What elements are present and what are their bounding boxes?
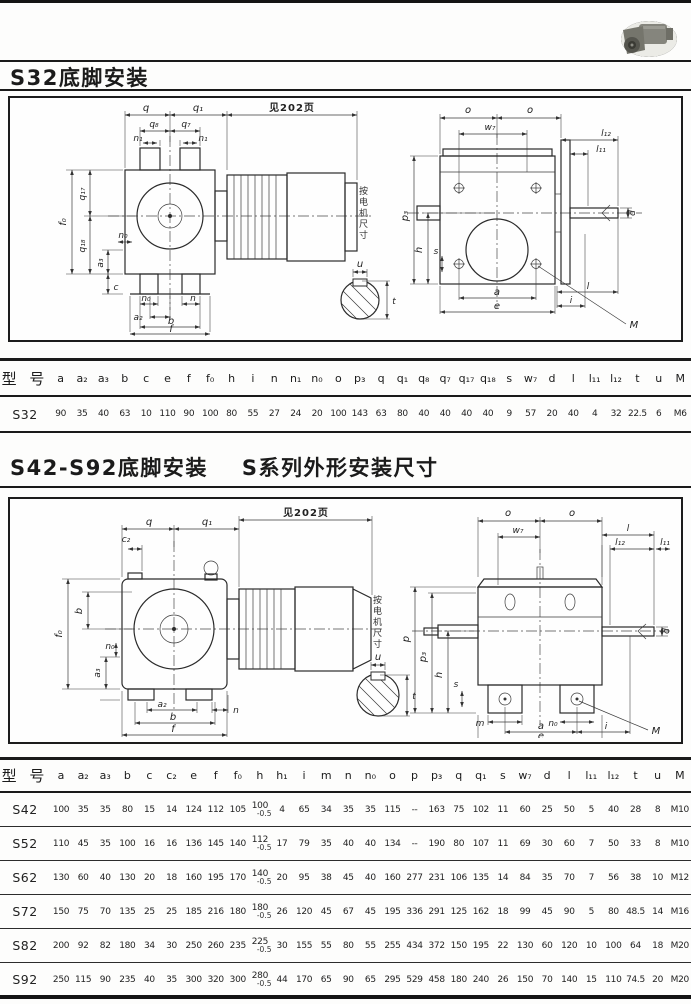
dim-column-header: p [404, 759, 426, 793]
dim-column-header: f₀ [200, 360, 221, 397]
dim-label-l11: l₁₁ [596, 145, 606, 155]
dim-label-i: i [570, 296, 573, 306]
dim-cell: 69 [514, 827, 536, 861]
dim-label-b-side: b [74, 608, 85, 614]
dim-cell: 79 [293, 827, 315, 861]
dim-label-f0: f₀ [54, 630, 65, 638]
dim-cell: 295 [381, 963, 403, 997]
dim-cell: 110 [50, 827, 72, 861]
dim-cell: 80 [337, 929, 359, 963]
dim-cell: -- [404, 792, 426, 827]
s4292-side-view: 按电机尺寸 见202页 q q₁ c₂ f₀ b a₃ n₀ [54, 507, 382, 737]
dim-cell: 40 [138, 963, 160, 997]
dim-cell: 140-0.5 [249, 861, 271, 895]
dim-cell: M20 [669, 963, 691, 997]
dim-column-header: n₀ [359, 759, 381, 793]
dim-cell: 65 [359, 963, 381, 997]
dim-column-header: s [492, 759, 514, 793]
dim-cell: 30 [160, 929, 182, 963]
s32-technical-drawing: 按电机尺寸 q q₁ 见202页 q₈ q₇ n₁ n₁ f₀ q₁₇ [10, 98, 677, 336]
s42-s92-drawing-box: 按电机尺寸 见202页 q q₁ c₂ f₀ b a₃ n₀ [8, 497, 683, 744]
dim-cell: 150 [514, 963, 536, 997]
dim-cell: 20 [647, 963, 669, 997]
dim-cell: 84 [514, 861, 536, 895]
dim-cell: 95 [293, 861, 315, 895]
title1-text: S32底脚安装 [10, 66, 149, 90]
dim-cell: 25 [536, 792, 558, 827]
dim-cell: 105 [227, 792, 249, 827]
dim-cell: M10 [669, 792, 691, 827]
dim-cell: 65 [315, 963, 337, 997]
s32-side-view: 按电机尺寸 q q₁ 见202页 q₈ q₇ n₁ n₁ f₀ q₁₇ [58, 102, 372, 335]
table-header-row: 型 号aa₂a₃bceff₀hinn₁n₀op₃qq₁q₈q₇q₁₇q₁₈sw₇… [0, 360, 691, 397]
dim-cell: 260 [205, 929, 227, 963]
dim-cell: 40 [93, 396, 114, 432]
dim-cell: 45 [315, 895, 337, 929]
dim-cell: 231 [426, 861, 448, 895]
dim-cell: 170 [227, 861, 249, 895]
section-title-s42-s92: S42-S92底脚安装S系列外形安装尺寸 [10, 452, 439, 482]
table-row: S8220092821803430250260235225-0.53015555… [0, 929, 691, 963]
dim-cell: 8 [647, 827, 669, 861]
dim-column-header: a [50, 759, 72, 793]
dim-cell: 10 [647, 861, 669, 895]
dim-cell: 200 [50, 929, 72, 963]
dim-cell: 40 [94, 861, 116, 895]
dim-label-M: M [630, 320, 639, 331]
s32-dimension-table: 型 号aa₂a₃bceff₀hinn₁n₀op₃qq₁q₈q₇q₁₇q₁₈sw₇… [0, 358, 691, 433]
dim-label-u: u [357, 259, 363, 270]
dim-cell: 63 [370, 396, 391, 432]
dim-cell: 70 [536, 963, 558, 997]
model-column-header: 型 号 [0, 759, 50, 793]
dim-cell: 140 [558, 963, 580, 997]
model-cell: S42 [0, 792, 50, 827]
dim-label-p: p [401, 636, 412, 643]
dim-column-header: m [315, 759, 337, 793]
dim-label-i: i [605, 722, 608, 732]
dim-cell: 70 [94, 895, 116, 929]
dim-label-t: t [412, 692, 416, 702]
dim-cell: 35 [94, 792, 116, 827]
s4292-shaft-section: u t [348, 652, 416, 737]
motor-size-note: 按电机尺寸 [371, 594, 382, 650]
dim-cell: 35 [94, 827, 116, 861]
dim-label-e: e [494, 301, 500, 312]
dim-label-n0-bottom: n₀ [141, 294, 151, 304]
dim-column-header: i [293, 759, 315, 793]
page-top-rule [0, 0, 691, 3]
dim-cell: 40 [434, 396, 455, 432]
dim-column-header: q [370, 360, 391, 397]
page-bottom-rule [0, 995, 691, 999]
dim-label-f: f [171, 724, 176, 735]
dim-cell: 5 [580, 895, 602, 929]
dim-cell: 100 [116, 827, 138, 861]
dim-cell: M12 [669, 861, 691, 895]
dim-cell: 60 [514, 792, 536, 827]
dim-cell: 4 [584, 396, 605, 432]
dim-cell: 60 [72, 861, 94, 895]
dim-cell: 124 [183, 792, 205, 827]
dim-cell: 40 [456, 396, 477, 432]
dim-label-q8: q₈ [149, 120, 159, 130]
s42-s92-technical-drawing: 按电机尺寸 见202页 q q₁ c₂ f₀ b a₃ n₀ [10, 499, 677, 738]
dim-column-header: w₇ [520, 360, 541, 397]
dim-label-q17: q₁₇ [78, 187, 88, 200]
dim-cell: 100 [200, 396, 221, 432]
dim-cell: 75 [448, 792, 470, 827]
see-page-note: 见202页 [283, 507, 329, 519]
dim-cell: 250 [183, 929, 205, 963]
dim-cell: 28 [624, 792, 646, 827]
dim-cell: 163 [426, 792, 448, 827]
dim-cell: 50 [602, 827, 624, 861]
dim-column-header: e [183, 759, 205, 793]
s32-drawing-box: 按电机尺寸 q q₁ 见202页 q₈ q₇ n₁ n₁ f₀ q₁₇ [8, 96, 683, 342]
dim-column-header: o [381, 759, 403, 793]
dim-cell: 250 [50, 963, 72, 997]
dim-cell: 100-0.5 [249, 792, 271, 827]
dim-cell: 34 [315, 792, 337, 827]
dim-label-n0-side: n₀ [118, 231, 128, 241]
dim-column-header: a₃ [93, 360, 114, 397]
dim-column-header: l₁₁ [584, 360, 605, 397]
dim-cell: 45 [359, 895, 381, 929]
dim-cell: 112 [205, 792, 227, 827]
dim-cell: 180 [227, 895, 249, 929]
dim-cell: 10 [135, 396, 156, 432]
dim-cell: 24 [285, 396, 306, 432]
dim-label-l12: l₁₂ [601, 129, 611, 139]
model-cell: S92 [0, 963, 50, 997]
dim-cell: 143 [349, 396, 370, 432]
dim-label-q: q [146, 517, 152, 528]
dim-cell: 155 [293, 929, 315, 963]
table-row: S6213060401302018160195170140-0.52095384… [0, 861, 691, 895]
dim-cell: 70 [558, 861, 580, 895]
dim-label-b: b [170, 712, 176, 723]
dim-cell: 6 [648, 396, 669, 432]
dim-cell: 100 [50, 792, 72, 827]
dim-column-header: q₁₇ [456, 360, 477, 397]
dim-label-n0-side: n₀ [105, 642, 115, 652]
dim-cell: 48.5 [624, 895, 646, 929]
dim-cell: 160 [183, 861, 205, 895]
dim-label-e: e [538, 731, 544, 738]
dim-cell: 4 [271, 792, 293, 827]
dim-column-header: n [337, 759, 359, 793]
dim-cell: 100 [328, 396, 349, 432]
dim-cell: 35 [536, 861, 558, 895]
dim-cell: 102 [470, 792, 492, 827]
dim-label-a2: a₂ [133, 313, 143, 323]
dim-cell: 110 [602, 963, 624, 997]
dim-cell: 45 [337, 861, 359, 895]
dim-column-header: f [205, 759, 227, 793]
dim-cell: 38 [315, 861, 337, 895]
dim-cell: 130 [50, 861, 72, 895]
dim-column-header: c [138, 759, 160, 793]
dim-cell: 162 [470, 895, 492, 929]
dim-label-d: d [662, 628, 672, 634]
dim-column-header: b [114, 360, 135, 397]
dim-cell: 15 [138, 792, 160, 827]
dim-cell: 67 [337, 895, 359, 929]
dim-cell: 170 [293, 963, 315, 997]
dim-cell: 240 [470, 963, 492, 997]
dim-column-header: a [50, 360, 71, 397]
dim-cell: 55 [359, 929, 381, 963]
dim-cell: 7 [580, 827, 602, 861]
dim-cell: 195 [205, 861, 227, 895]
dim-label-q: q [143, 103, 149, 114]
dim-column-header: c [135, 360, 156, 397]
dim-cell: 8 [647, 792, 669, 827]
table-row: S329035406310110901008055272420100143638… [0, 396, 691, 432]
dim-column-header: d [536, 759, 558, 793]
dim-column-header: q₁₈ [477, 360, 498, 397]
dim-cell: 7 [580, 861, 602, 895]
dim-column-header: q [448, 759, 470, 793]
dim-cell: 99 [514, 895, 536, 929]
dim-cell: 14 [492, 861, 514, 895]
dim-cell: 106 [448, 861, 470, 895]
dim-label-d: d [628, 210, 638, 216]
dim-cell: 65 [293, 792, 315, 827]
dim-label-M: M [652, 726, 661, 737]
dim-label-m: m [476, 719, 485, 729]
dim-cell: 11 [492, 792, 514, 827]
dim-label-p3: p₃ [400, 211, 411, 222]
dim-label-o1: o [505, 508, 511, 519]
dim-label-o2: o [527, 105, 533, 116]
dim-cell: 336 [404, 895, 426, 929]
dim-column-header: s [499, 360, 520, 397]
dim-cell: 75 [72, 895, 94, 929]
dim-cell: 255 [381, 929, 403, 963]
dim-cell: 33 [624, 827, 646, 861]
s4292-front-view: o o w₇ l l₁₂ l₁₁ p p₃ h s d m n₀ a i e M [401, 508, 672, 738]
dim-cell: 458 [426, 963, 448, 997]
dim-column-header: t [624, 759, 646, 793]
table-row: S5211045351001616136145140112-0.51779354… [0, 827, 691, 861]
dim-cell: 35 [337, 792, 359, 827]
dim-cell: 63 [114, 396, 135, 432]
dim-cell: 27 [264, 396, 285, 432]
dim-cell: 529 [404, 963, 426, 997]
dim-label-q7: q₇ [181, 120, 191, 130]
dim-cell: 64 [624, 929, 646, 963]
dim-column-header: M [669, 759, 691, 793]
dim-cell: 134 [381, 827, 403, 861]
dim-cell: 40 [337, 827, 359, 861]
dim-column-header: w₇ [514, 759, 536, 793]
dim-cell: 135 [116, 895, 138, 929]
dim-cell: 135 [470, 861, 492, 895]
dim-cell: 225-0.5 [249, 929, 271, 963]
dim-cell: 291 [426, 895, 448, 929]
dim-cell: 140 [227, 827, 249, 861]
see-page-note: 见202页 [269, 102, 315, 114]
dim-label-h: h [434, 672, 445, 678]
dim-cell: 20 [271, 861, 293, 895]
dim-column-header: a₂ [71, 360, 92, 397]
dim-column-header: p₃ [349, 360, 370, 397]
dim-label-t: t [392, 297, 396, 307]
model-column-header: 型 号 [0, 360, 50, 397]
model-cell: S52 [0, 827, 50, 861]
dim-label-o2: o [569, 508, 575, 519]
dim-label-o1: o [465, 105, 471, 116]
dim-label-u: u [375, 652, 381, 663]
dim-label-f0: f₀ [58, 218, 69, 226]
dim-cell: 107 [470, 827, 492, 861]
dim-cell: 40 [602, 792, 624, 827]
dim-cell: 34 [138, 929, 160, 963]
dim-column-header: t [627, 360, 648, 397]
dim-cell: 55 [242, 396, 263, 432]
dim-cell: 195 [470, 929, 492, 963]
dim-column-header: o [328, 360, 349, 397]
dim-cell: 235 [116, 963, 138, 997]
dim-column-header: d [541, 360, 562, 397]
motor-size-note: 按电机尺寸 [357, 185, 368, 241]
dim-cell: 90 [558, 895, 580, 929]
dim-label-p3: p₃ [418, 652, 429, 663]
dim-cell: 26 [492, 963, 514, 997]
dim-cell: -- [404, 827, 426, 861]
dim-column-header: q₁ [392, 360, 413, 397]
dim-cell: 35 [315, 827, 337, 861]
dim-column-header: q₇ [434, 360, 455, 397]
dim-cell: 38 [624, 861, 646, 895]
dim-cell: 25 [160, 895, 182, 929]
dim-cell: 130 [514, 929, 536, 963]
dim-column-header: c₂ [160, 759, 182, 793]
dim-cell: 195 [381, 895, 403, 929]
dim-cell: 35 [359, 792, 381, 827]
dim-label-c2: c₂ [122, 535, 131, 545]
dim-cell: 35 [160, 963, 182, 997]
dim-column-header: b [116, 759, 138, 793]
dim-cell: 14 [160, 792, 182, 827]
dim-cell: 160 [381, 861, 403, 895]
dim-cell: 92 [72, 929, 94, 963]
dim-cell: 35 [71, 396, 92, 432]
dim-cell: 18 [647, 929, 669, 963]
dim-column-header: u [647, 759, 669, 793]
dim-cell: 80 [392, 396, 413, 432]
dim-cell: 434 [404, 929, 426, 963]
dim-cell: 280-0.5 [249, 963, 271, 997]
table-header-row: 型 号aa₂a₃bcc₂eff₀hh₁imnn₀opp₃qq₁sw₇dll₁₁l… [0, 759, 691, 793]
section-title-s32: S32底脚安装 [10, 62, 149, 92]
dim-cell: 150 [50, 895, 72, 929]
dim-cell: 300 [227, 963, 249, 997]
dim-column-header: h₁ [271, 759, 293, 793]
table-row: S92250115902354035300320300280-0.5441706… [0, 963, 691, 997]
dim-cell: 80 [602, 895, 624, 929]
dim-label-n: n [190, 294, 196, 304]
dim-cell: 5 [580, 792, 602, 827]
dim-cell: 300 [183, 963, 205, 997]
horizontal-rule [0, 89, 691, 91]
dim-cell: 16 [138, 827, 160, 861]
dim-column-header: n₀ [306, 360, 327, 397]
dim-column-header: e [157, 360, 178, 397]
dim-column-header: f [178, 360, 199, 397]
dim-cell: 32 [605, 396, 626, 432]
dim-cell: 30 [536, 827, 558, 861]
dim-cell: 18 [160, 861, 182, 895]
model-cell: S32 [0, 396, 50, 432]
dim-label-h: h [414, 247, 425, 253]
dim-cell: 372 [426, 929, 448, 963]
dim-cell: 55 [315, 929, 337, 963]
dim-cell: 20 [541, 396, 562, 432]
dim-column-header: p₃ [426, 759, 448, 793]
s32-shaft-section: u t [332, 259, 396, 336]
dim-cell: 80 [221, 396, 242, 432]
dim-label-w7: w₇ [485, 123, 496, 133]
dim-cell: 40 [413, 396, 434, 432]
dim-column-header: l₁₁ [580, 759, 602, 793]
dim-column-header: a₃ [94, 759, 116, 793]
model-cell: S72 [0, 895, 50, 929]
dim-cell: 320 [205, 963, 227, 997]
dim-label-s: s [454, 680, 459, 690]
dim-cell: 60 [558, 827, 580, 861]
dim-cell: M20 [669, 929, 691, 963]
dim-cell: 120 [558, 929, 580, 963]
dim-cell: 180 [448, 963, 470, 997]
dim-column-header: l₁₂ [602, 759, 624, 793]
horizontal-rule [0, 486, 691, 488]
s32-front-view: o o w₇ l₁₂ l₁₁ p₃ h s d a e l i M [400, 105, 642, 331]
dim-label-a3: a₃ [93, 668, 103, 678]
dim-cell: 112-0.5 [249, 827, 271, 861]
table-row: S421003535801514124112105100-0.546534353… [0, 792, 691, 827]
dim-label-q1: q₁ [193, 103, 203, 114]
dim-cell: 150 [448, 929, 470, 963]
dim-column-header: a₂ [72, 759, 94, 793]
dim-cell: 216 [205, 895, 227, 929]
dim-column-header: u [648, 360, 669, 397]
dim-cell: 11 [492, 827, 514, 861]
dim-cell: 130 [116, 861, 138, 895]
model-cell: S62 [0, 861, 50, 895]
dim-cell: 90 [50, 396, 71, 432]
dim-column-header: n₁ [285, 360, 306, 397]
gearmotor-photo [615, 16, 679, 60]
dim-cell: M6 [669, 396, 691, 432]
dim-cell: 136 [183, 827, 205, 861]
dim-label-a: a [494, 287, 500, 298]
dim-label-a3: a₃ [96, 258, 106, 268]
dim-label-s: s [434, 247, 439, 257]
dim-cell: 40 [477, 396, 498, 432]
dim-cell: 22.5 [627, 396, 648, 432]
dim-label-n0-bottom: n₀ [548, 719, 558, 729]
dim-label-l: l [627, 524, 630, 534]
model-cell: S82 [0, 929, 50, 963]
dim-cell: 235 [227, 929, 249, 963]
dim-column-header: l [563, 360, 584, 397]
dim-cell: 16 [160, 827, 182, 861]
dim-cell: 18 [492, 895, 514, 929]
dim-label-n: n [233, 706, 239, 716]
